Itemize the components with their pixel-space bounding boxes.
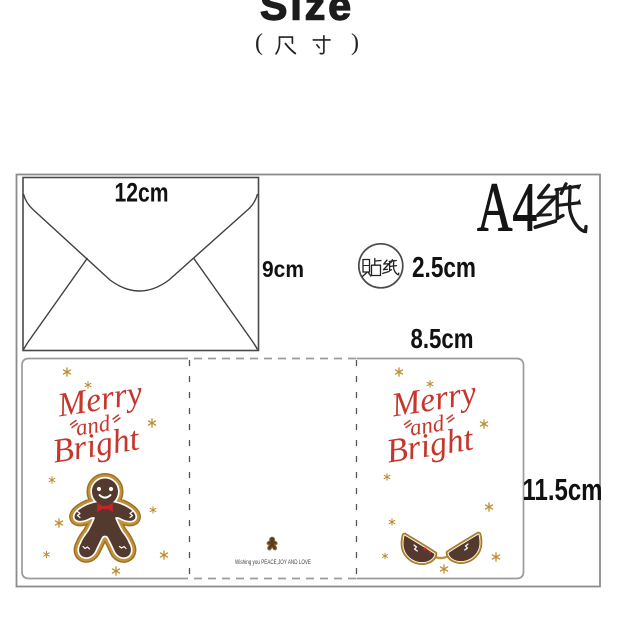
svg-text:Size: Size [260, 0, 354, 29]
svg-text:12cm: 12cm [115, 178, 169, 208]
svg-text:): ) [351, 30, 359, 56]
svg-text:2.5cm: 2.5cm [412, 252, 476, 284]
svg-text:Bright: Bright [50, 420, 143, 470]
svg-text:8.5cm: 8.5cm [411, 323, 474, 354]
svg-text:11.5cm: 11.5cm [523, 472, 603, 507]
svg-text:A4: A4 [477, 170, 537, 247]
svg-text:Wishing you PEACE,JOY AND LOVE: Wishing you PEACE,JOY AND LOVE [235, 560, 311, 566]
svg-text:(: ( [255, 30, 263, 56]
svg-text:Bright: Bright [384, 420, 477, 470]
svg-text:9cm: 9cm [262, 256, 304, 282]
